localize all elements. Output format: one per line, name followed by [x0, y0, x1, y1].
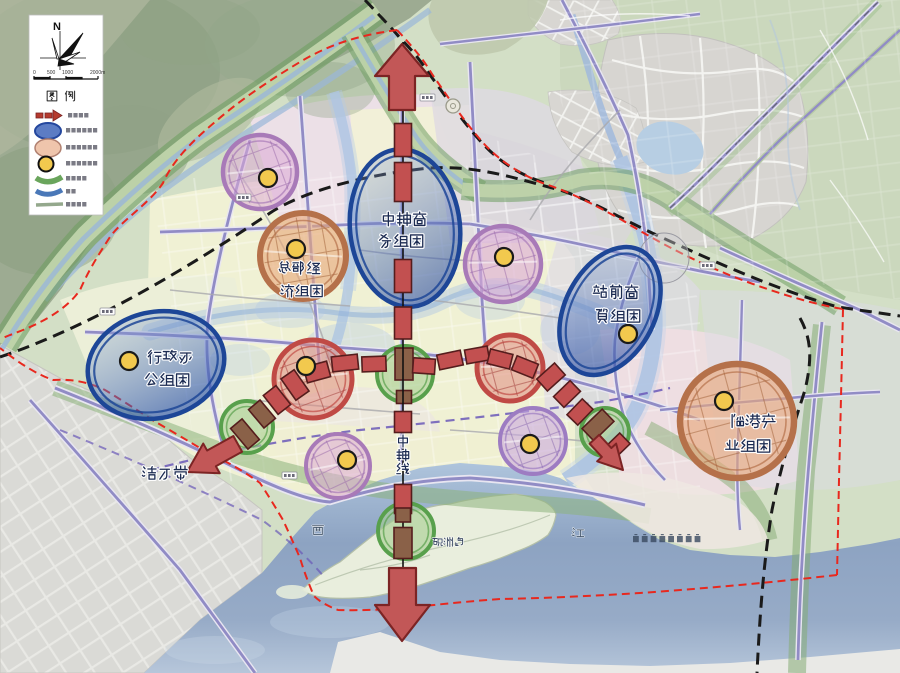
svg-text:2000m: 2000m — [90, 70, 105, 76]
svg-text:1000: 1000 — [62, 70, 73, 76]
svg-text:0: 0 — [33, 70, 36, 76]
svg-text:500: 500 — [47, 70, 56, 76]
